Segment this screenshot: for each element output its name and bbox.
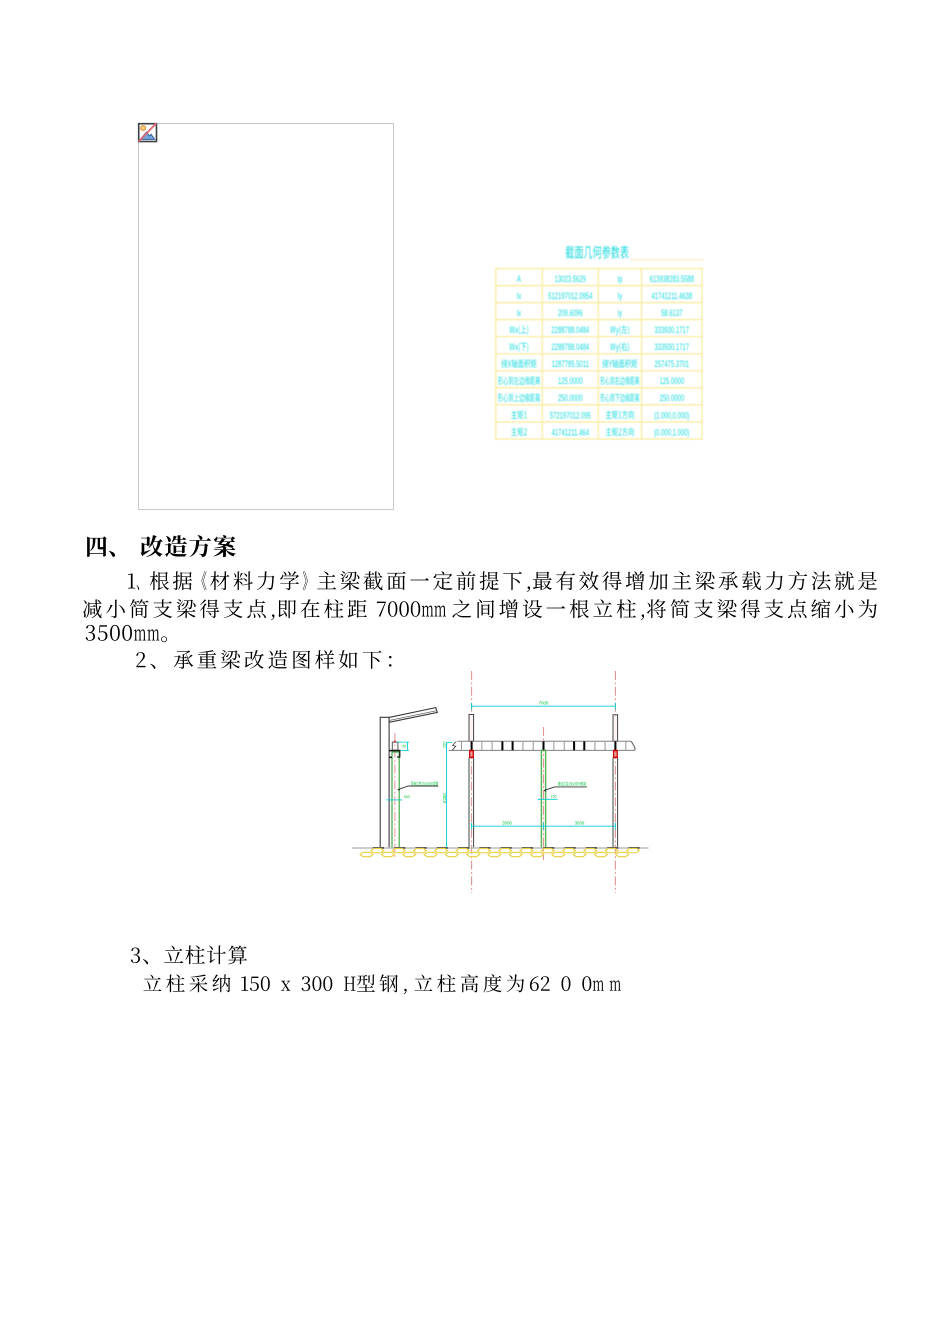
svg-text:Iy: Iy <box>618 291 623 302</box>
svg-text:3500: 3500 <box>502 820 512 825</box>
svg-text:572197012.095: 572197012.095 <box>550 410 592 421</box>
svg-text:ix: ix <box>517 308 521 319</box>
svg-text:50: 50 <box>402 745 406 749</box>
svg-text:1287785.5011: 1287785.5011 <box>552 359 589 370</box>
svg-text:613938283.5588: 613938283.5588 <box>650 274 695 285</box>
svg-text:58.6137: 58.6137 <box>661 308 682 319</box>
svg-text:150: 150 <box>551 795 557 799</box>
svg-text:Ip: Ip <box>617 274 622 285</box>
svg-text:Ix: Ix <box>517 291 522 302</box>
svg-text:125.0000: 125.0000 <box>659 376 684 387</box>
svg-text:125.0000: 125.0000 <box>558 376 583 387</box>
svg-text:6200: 6200 <box>442 793 447 803</box>
svg-text:7000: 7000 <box>539 701 549 706</box>
svg-text:(0.000,1.000): (0.000,1.000) <box>654 427 689 438</box>
svg-text:41741211.464: 41741211.464 <box>552 427 590 438</box>
svg-text:250.0000: 250.0000 <box>659 393 684 404</box>
svg-text:250.0000: 250.0000 <box>558 393 583 404</box>
svg-text:2288788.0484: 2288788.0484 <box>551 325 589 336</box>
svg-text:333930.1717: 333930.1717 <box>655 342 690 353</box>
svg-text:209.6096: 209.6096 <box>558 308 583 319</box>
svg-text:A: A <box>517 274 522 285</box>
svg-text:3500: 3500 <box>575 820 585 825</box>
svg-text:512197012.0954: 512197012.0954 <box>548 291 593 302</box>
svg-text:13023.5629: 13023.5629 <box>555 274 586 285</box>
svg-text:41741211.4638: 41741211.4638 <box>651 291 692 302</box>
svg-text:(1.000,0.000): (1.000,0.000) <box>654 410 689 421</box>
svg-text:250: 250 <box>443 741 447 747</box>
svg-text:2288788.0484: 2288788.0484 <box>551 342 589 353</box>
svg-text:iy: iy <box>618 308 622 319</box>
svg-text:500: 500 <box>404 795 410 799</box>
svg-text:257475.3701: 257475.3701 <box>655 359 690 370</box>
svg-text:333930.1717: 333930.1717 <box>655 325 690 336</box>
